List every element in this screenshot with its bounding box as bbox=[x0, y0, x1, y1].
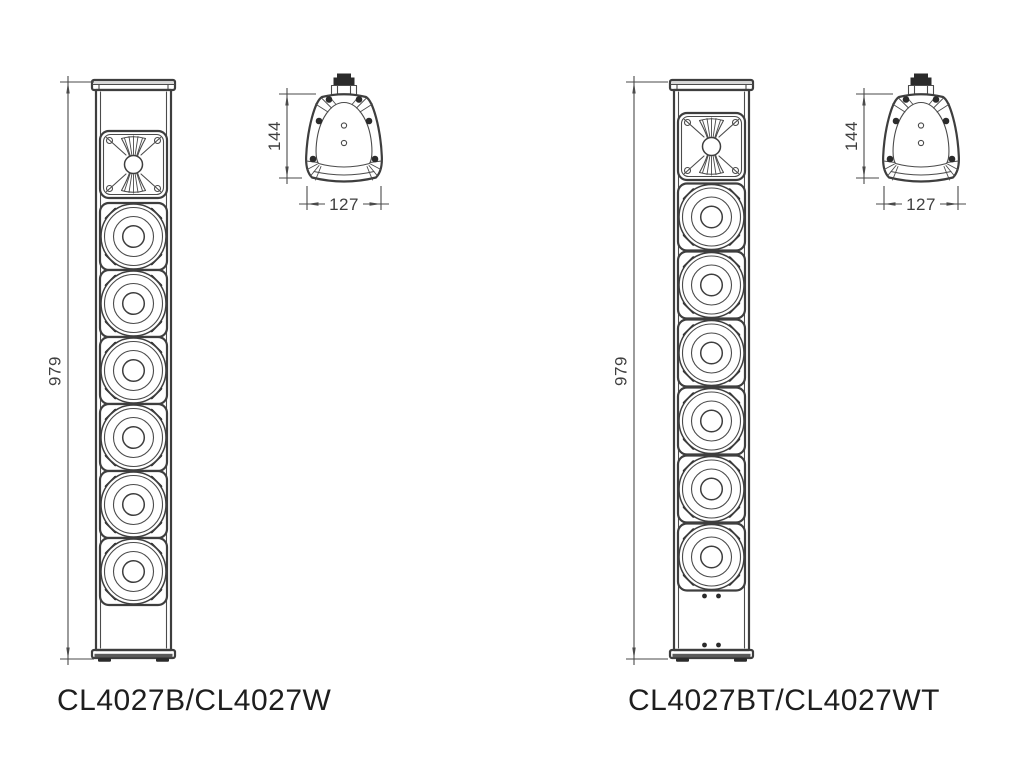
product-name-label: CL4027BT/CL4027WT bbox=[628, 684, 940, 717]
top-view-cl4027bt: 144 127 bbox=[842, 74, 966, 215]
woofer-driver bbox=[100, 404, 167, 471]
woofer-driver bbox=[678, 252, 745, 319]
depth-dimension-label: 144 bbox=[842, 121, 861, 151]
woofer-driver bbox=[678, 456, 745, 523]
top-view-cl4027b: 144 127 bbox=[265, 74, 389, 215]
width-dimension-left: 127 bbox=[299, 186, 389, 214]
woofer-driver bbox=[100, 538, 167, 605]
tweeter-driver bbox=[100, 131, 167, 198]
woofer-driver bbox=[678, 320, 745, 387]
speaker-technical-drawing: 979 144 127 CL4027B/CL4027W bbox=[0, 0, 1010, 768]
height-dimension-label: 979 bbox=[46, 356, 65, 386]
figure-cl4027b: 979 144 127 CL4027B/CL4027W bbox=[46, 74, 390, 718]
woofer-driver bbox=[100, 337, 167, 404]
width-dimension-label: 127 bbox=[329, 195, 359, 214]
width-dimension-right: 127 bbox=[876, 186, 966, 214]
height-dimension-right: 979 bbox=[612, 76, 669, 665]
woofer-driver bbox=[100, 471, 167, 538]
tweeter-driver bbox=[678, 113, 745, 180]
figure-cl4027bt: 979 144 127 CL4027BT/CL4027WT bbox=[612, 74, 967, 718]
woofer-driver bbox=[678, 388, 745, 455]
woofer-driver bbox=[678, 184, 745, 251]
front-view-cl4027b bbox=[92, 80, 175, 662]
front-view-cl4027bt bbox=[670, 80, 753, 662]
depth-dimension-label: 144 bbox=[265, 121, 284, 151]
height-dimension-label: 979 bbox=[612, 356, 631, 386]
woofer-driver bbox=[678, 524, 745, 591]
top-view-outline bbox=[306, 74, 382, 182]
height-dimension-left: 979 bbox=[46, 76, 95, 665]
top-view-outline bbox=[883, 74, 959, 182]
width-dimension-label: 127 bbox=[906, 195, 936, 214]
woofer-driver bbox=[100, 270, 167, 337]
woofer-driver bbox=[100, 203, 167, 270]
product-name-label: CL4027B/CL4027W bbox=[57, 684, 332, 717]
